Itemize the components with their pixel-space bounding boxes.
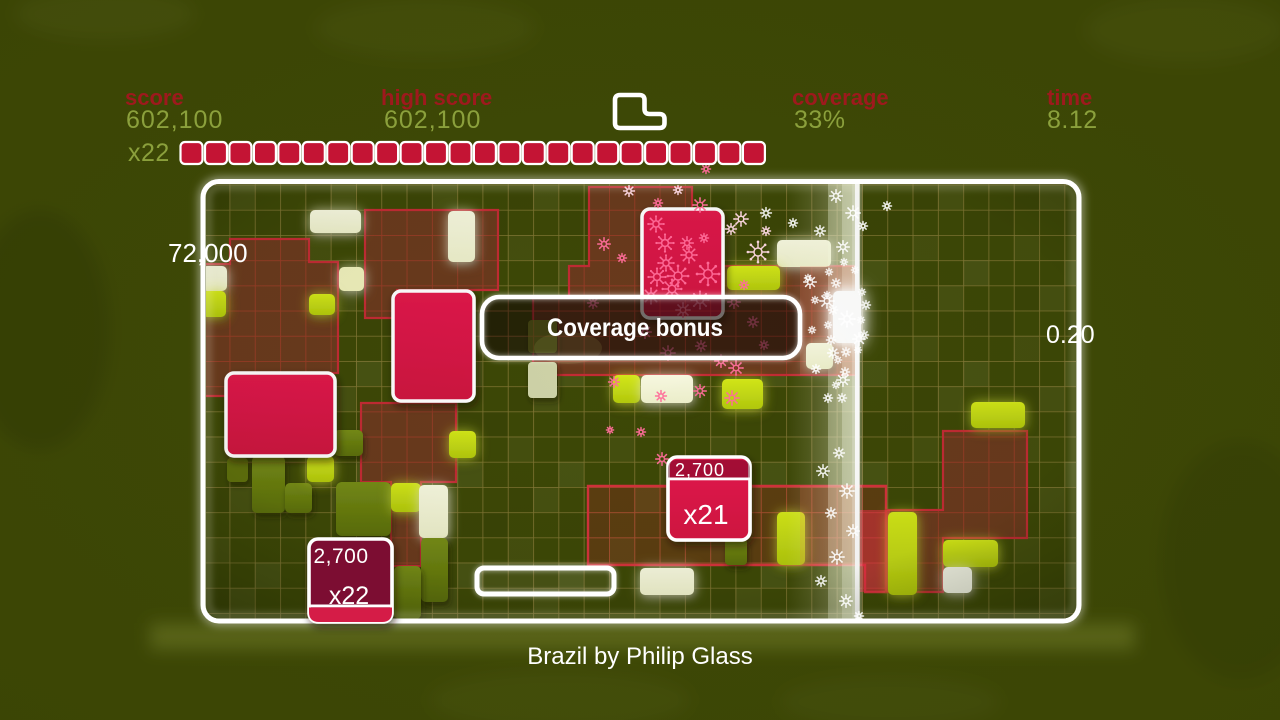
svg-text:0.20: 0.20 [1046,321,1095,349]
svg-text:72,000: 72,000 [168,238,248,268]
svg-text:2,700: 2,700 [313,545,368,568]
svg-text:2,700: 2,700 [675,460,725,480]
svg-text:33%: 33% [794,106,846,134]
svg-text:Brazil by Philip Glass: Brazil by Philip Glass [527,643,752,670]
svg-text:x22: x22 [329,582,369,610]
svg-text:Coverage bonus: Coverage bonus [547,314,723,342]
svg-text:602,100: 602,100 [126,106,223,134]
svg-text:602,100: 602,100 [384,106,481,134]
svg-text:x21: x21 [683,499,728,530]
svg-text:8.12: 8.12 [1047,106,1098,134]
svg-text:x22: x22 [128,139,170,167]
